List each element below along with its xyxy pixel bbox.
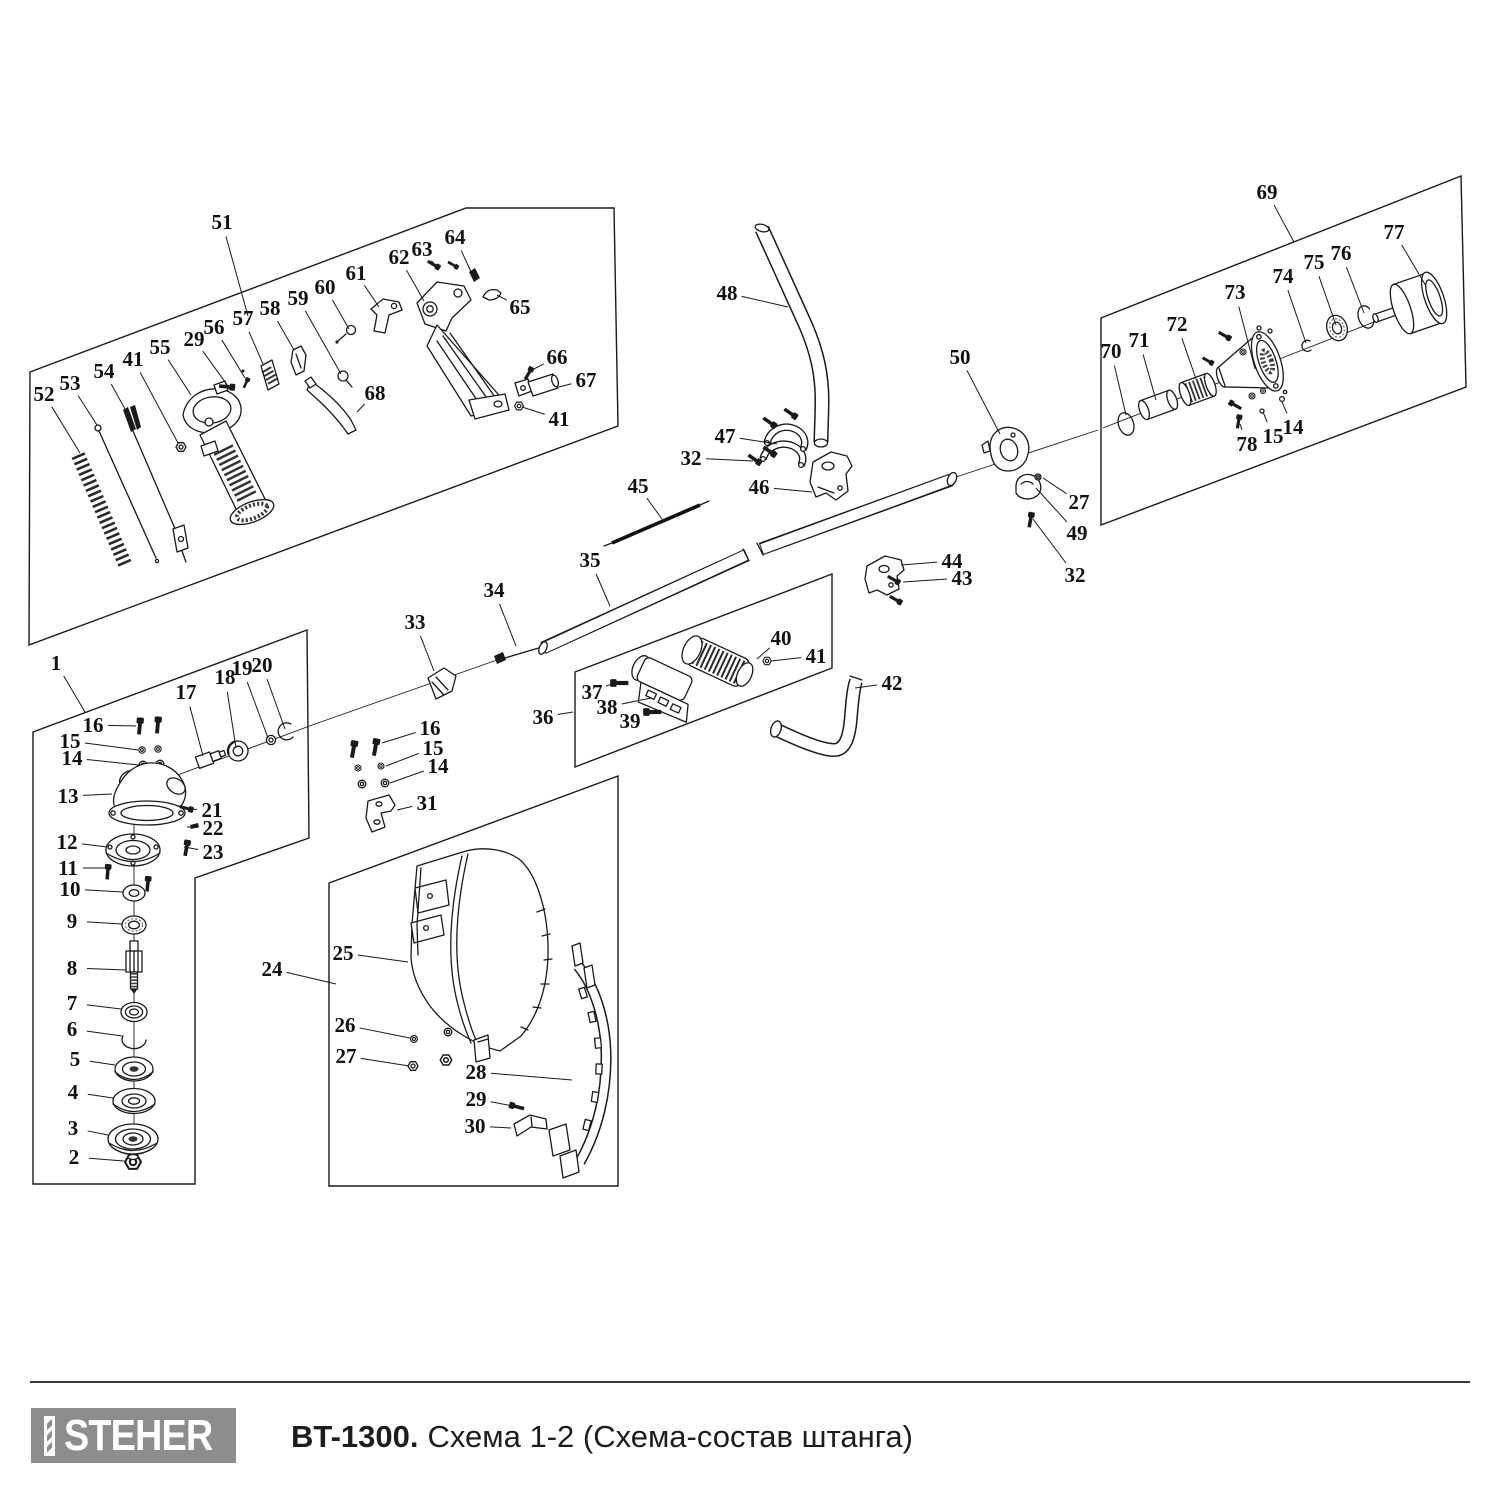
part-30-clip: [514, 1115, 547, 1136]
part-16-screw: [153, 716, 162, 733]
leader-line-27: [1043, 478, 1067, 494]
part-number-30: 30: [465, 1114, 486, 1138]
part-number-56: 56: [204, 315, 225, 339]
part-78-screw: [1217, 330, 1232, 342]
leader-line-36: [558, 712, 573, 715]
part-number-42: 42: [882, 671, 903, 695]
part-number-2: 2: [69, 1145, 80, 1169]
part-number-12: 12: [57, 830, 78, 854]
leader-line-27: [361, 1058, 409, 1066]
part-number-31: 31: [417, 791, 438, 815]
leader-line-18: [227, 692, 236, 748]
leader-line-78: [1240, 424, 1242, 430]
page-title: BT-1300.Схема 1-2 (Схема-состав штанга): [291, 1419, 913, 1455]
leader-line-41: [140, 372, 178, 443]
part-12-flange: [106, 834, 160, 866]
part-17-pinion-shaft: [195, 747, 226, 768]
part-number-3: 3: [68, 1116, 79, 1140]
part-27-nut: [440, 1055, 452, 1065]
part-number-20: 20: [252, 653, 273, 677]
leader-line-16: [108, 725, 136, 726]
part-number-45: 45: [628, 474, 649, 498]
part-number-39: 39: [620, 709, 641, 733]
part-57-button: [261, 360, 279, 390]
leader-line-43: [903, 579, 947, 582]
part-15-washer: [378, 763, 384, 769]
leader-line-16: [382, 732, 416, 743]
part-number-38: 38: [597, 695, 618, 719]
part-25-guard: [411, 849, 552, 1062]
part-number-5: 5: [70, 1047, 81, 1071]
part-number-13: 13: [58, 784, 79, 808]
leader-line-33: [420, 636, 434, 671]
leader-line-10: [85, 890, 123, 892]
part-67-cable-end: [515, 374, 560, 396]
part-22-pin: [190, 823, 199, 829]
part-number-14: 14: [428, 754, 450, 778]
leader-line-51: [226, 236, 248, 316]
part-78-screw: [1201, 355, 1215, 366]
part-number-71: 71: [1129, 328, 1150, 352]
leader-line-13: [83, 794, 112, 795]
part-number-36: 36: [533, 705, 554, 729]
part-65-clip: [483, 290, 501, 300]
axis-line: [315, 660, 497, 724]
part-53-cable: [95, 425, 159, 563]
leader-line-60: [332, 300, 349, 329]
leader-line-55: [168, 360, 191, 395]
part-number-67: 67: [576, 368, 597, 392]
part-number-58: 58: [260, 296, 281, 320]
part-number-41: 41: [123, 347, 144, 371]
part-26-washer: [411, 1036, 418, 1043]
part-16-screw: [370, 738, 380, 757]
part-number-69: 69: [1257, 180, 1278, 204]
part-number-7: 7: [67, 991, 78, 1015]
part-number-19: 19: [232, 656, 253, 680]
leader-line-45: [647, 498, 662, 519]
part-64-pins: [447, 260, 480, 282]
part-number-57: 57: [233, 306, 254, 330]
part-14-washer: [358, 780, 366, 788]
leader-line-7: [87, 1005, 121, 1009]
part-number-33: 33: [405, 610, 426, 634]
leader-line-6: [87, 1031, 122, 1036]
part-number-9: 9: [67, 909, 78, 933]
leader-line-58: [277, 321, 294, 350]
leader-line-66: [532, 364, 544, 370]
part-54-cable: [123, 405, 188, 562]
part-number-41: 41: [549, 407, 570, 431]
part-number-70: 70: [1101, 339, 1122, 363]
part-number-10: 10: [60, 877, 81, 901]
part-44-cable-bracket: [865, 556, 904, 595]
part-13-gear-housing: [109, 763, 188, 825]
part-number-4: 4: [68, 1080, 79, 1104]
part-11-screw: [144, 876, 152, 892]
part-number-16: 16: [83, 713, 104, 737]
part-60-ring: [335, 326, 355, 344]
part-number-46: 46: [749, 475, 770, 499]
part-number-47: 47: [715, 424, 736, 448]
part-15-washer: [155, 746, 161, 752]
leader-line-12: [82, 844, 107, 847]
leader-line-34: [499, 604, 516, 646]
part-number-32: 32: [1065, 563, 1086, 587]
part-29-screw: [508, 1102, 525, 1112]
part-number-43: 43: [952, 566, 973, 590]
part-31-bracket: [366, 795, 395, 832]
part-72-spline-sleeve: [1177, 372, 1219, 407]
leader-line-15: [1263, 412, 1267, 422]
leader-line-76: [1346, 267, 1364, 313]
leader-line-74: [1288, 290, 1306, 343]
part-number-22: 22: [203, 816, 224, 840]
part-number-50: 50: [950, 345, 971, 369]
part-71-bushing: [1136, 389, 1179, 421]
part-number-76: 76: [1331, 241, 1352, 265]
leader-line-54: [111, 384, 125, 409]
part-14-washer: [1280, 397, 1285, 402]
part-78-screw: [1234, 414, 1242, 429]
part-number-54: 54: [94, 359, 116, 383]
leader-line-14: [390, 771, 424, 783]
part-15-washer: [1240, 349, 1246, 355]
leader-line-14: [1282, 402, 1287, 413]
leader-line-41: [522, 407, 545, 414]
part-77-clutch-drum: [1364, 269, 1451, 344]
part-number-6: 6: [67, 1017, 78, 1041]
part-7-bearing: [121, 1003, 147, 1022]
part-2-nut: [125, 1155, 141, 1169]
leader-line-26: [360, 1028, 410, 1038]
gearhead-assembly-parts: [104, 716, 293, 1169]
leader-line-15: [85, 743, 138, 750]
part-41-nut: [176, 443, 186, 452]
part-number-29: 29: [184, 327, 205, 351]
part-3-cup-washer: [108, 1124, 158, 1155]
part-46-clamp-bracket: [810, 452, 852, 500]
part-number-1: 1: [51, 651, 62, 675]
part-number-32: 32: [681, 446, 702, 470]
part-45-cable: [604, 501, 709, 546]
leader-line-67: [559, 384, 571, 387]
part-number-14: 14: [62, 746, 84, 770]
part-62-handle-right-half: [417, 282, 509, 419]
leader-line-5: [90, 1061, 115, 1065]
leader-line-8: [87, 969, 126, 970]
leader-line-15: [386, 753, 419, 766]
part-11-screw: [104, 864, 112, 880]
part-16-screw: [348, 740, 358, 759]
part-number-49: 49: [1067, 521, 1088, 545]
part-74-clip: [1302, 340, 1311, 351]
leader-line-70: [1114, 366, 1126, 415]
page: 5152535441552956575859606162636465666741…: [0, 0, 1500, 1500]
guard-assembly-parts: [408, 849, 606, 1178]
leader-line-28: [491, 1073, 572, 1080]
part-15-washer: [1249, 393, 1255, 399]
part-number-59: 59: [288, 286, 309, 310]
leader-line-35: [596, 574, 610, 606]
part-number-26: 26: [335, 1013, 356, 1037]
part-number-73: 73: [1225, 280, 1246, 304]
part-9-bearing: [122, 916, 146, 934]
group-box-clutch-assembly: [1101, 176, 1466, 525]
part-32-screw: [747, 452, 763, 466]
part-27-nut: [1035, 474, 1041, 480]
leader-line-72: [1182, 338, 1196, 379]
part-33-clamp: [428, 668, 456, 699]
part-number-78: 78: [1237, 432, 1258, 456]
part-58-switch: [291, 346, 306, 375]
part-number-52: 52: [34, 382, 55, 406]
group-box-handle-assembly: [29, 208, 618, 645]
part-number-75: 75: [1304, 250, 1325, 274]
part-78-screw: [1228, 399, 1243, 411]
part-number-27: 27: [1069, 490, 1090, 514]
part-number-55: 55: [150, 335, 171, 359]
part-15-washer: [1260, 388, 1265, 393]
part-14-washer: [1283, 390, 1286, 393]
part-number-8: 8: [67, 956, 78, 980]
part-number-53: 53: [60, 371, 81, 395]
part-4-washer: [113, 1089, 155, 1114]
part-number-41: 41: [806, 644, 827, 668]
part-20-circlip: [278, 723, 293, 740]
part-56-pin: [242, 370, 251, 389]
leader-line-1: [64, 676, 85, 712]
leader-line-30: [490, 1127, 511, 1128]
leader-line-49: [1036, 488, 1067, 522]
part-number-63: 63: [412, 237, 433, 261]
part-number-24: 24: [262, 957, 284, 981]
leader-line-20: [267, 679, 285, 729]
part-28-guard-extension: [549, 943, 606, 1178]
part-47-clamp-upper: [761, 406, 806, 467]
leader-line-53: [78, 396, 97, 425]
leader-line-17: [190, 706, 203, 756]
leader-line-52: [52, 407, 80, 453]
part-number-27: 27: [336, 1044, 357, 1068]
part-number-14: 14: [1283, 415, 1305, 439]
leader-line-3: [88, 1131, 108, 1135]
handle-assembly-parts: [78, 259, 560, 564]
part-number-65: 65: [510, 295, 531, 319]
part-43-screw: [888, 594, 903, 606]
part-8-spindle: [126, 941, 142, 994]
part-50-coupler-clamp: [982, 427, 1029, 471]
leader-line-46: [774, 488, 812, 492]
part-number-74: 74: [1273, 264, 1295, 288]
part-number-64: 64: [445, 225, 467, 249]
leader-line-69: [1274, 205, 1294, 242]
part-number-15: 15: [1263, 424, 1284, 448]
part-number-35: 35: [580, 548, 601, 572]
part-number-25: 25: [333, 941, 354, 965]
brand-logo-icon: [44, 1416, 55, 1456]
part-61-trigger: [371, 299, 402, 333]
part-number-28: 28: [466, 1060, 487, 1084]
leader-line-32: [706, 459, 753, 461]
part-15-washer: [139, 747, 145, 753]
part-number-60: 60: [315, 275, 336, 299]
leader-line-57: [249, 332, 263, 364]
leader-line-50: [967, 370, 1000, 434]
leader-line-71: [1143, 354, 1156, 400]
part-number-17: 17: [176, 680, 197, 704]
part-number-29: 29: [466, 1087, 487, 1111]
part-66-screw: [523, 366, 535, 381]
part-number-61: 61: [346, 261, 367, 285]
part-68-lever: [305, 377, 356, 434]
leader-line-68: [357, 404, 365, 412]
leader-line-9: [87, 922, 122, 924]
leader-line-62: [406, 270, 424, 301]
leader-line-56: [222, 340, 245, 378]
part-number-40: 40: [771, 626, 792, 650]
leader-line-41: [771, 658, 801, 661]
part-41-nut: [515, 402, 524, 410]
part-15-washer: [355, 765, 361, 771]
footer-divider: [30, 1381, 1470, 1383]
part-41-nut: [763, 657, 772, 664]
part-34-drive-rod: [494, 647, 542, 664]
part-26-washer: [444, 1028, 452, 1036]
part-number-34: 34: [484, 578, 506, 602]
leader-line-44: [901, 562, 937, 565]
part-10-bearing: [123, 885, 145, 901]
part-number-48: 48: [717, 281, 738, 305]
leader-line-48: [742, 296, 788, 307]
part-number-51: 51: [212, 210, 233, 234]
part-number-68: 68: [365, 381, 386, 405]
leader-line-4: [88, 1094, 113, 1098]
leader-line-64: [461, 251, 472, 274]
part-75-bearing: [1323, 312, 1350, 343]
part-5-cup: [115, 1057, 153, 1081]
model-number: BT-1300.: [291, 1419, 419, 1454]
part-18-bearing: [225, 738, 251, 764]
leader-line-61: [364, 285, 379, 307]
part-number-72: 72: [1167, 312, 1188, 336]
part-14-washer: [1257, 326, 1261, 330]
part-55-handle-left-half: [183, 381, 277, 530]
brand-logo: STEHER: [31, 1408, 236, 1463]
part-number-77: 77: [1384, 220, 1405, 244]
leader-line-31: [397, 806, 412, 810]
leader-line-19: [247, 682, 268, 738]
part-27-nut: [408, 1062, 418, 1071]
brand-name: STEHER: [64, 1411, 212, 1461]
leader-line-2: [89, 1158, 124, 1161]
part-16-screw: [135, 717, 144, 734]
leader-line-29: [203, 351, 228, 386]
schema-title: Схема 1-2 (Схема-состав штанга): [428, 1419, 913, 1454]
leader-line-32: [1033, 519, 1066, 563]
part-number-62: 62: [389, 245, 410, 269]
leader-line-75: [1319, 276, 1336, 325]
diagram-canvas: 5152535441552956575859606162636465666741…: [0, 0, 1500, 1500]
part-number-66: 66: [547, 345, 568, 369]
part-52-spring: [78, 455, 125, 564]
part-14-washer: [381, 779, 389, 787]
part-number-23: 23: [203, 840, 224, 864]
leader-line-14: [87, 760, 139, 765]
part-14-washer: [1268, 329, 1272, 333]
leader-line-25: [358, 955, 408, 962]
